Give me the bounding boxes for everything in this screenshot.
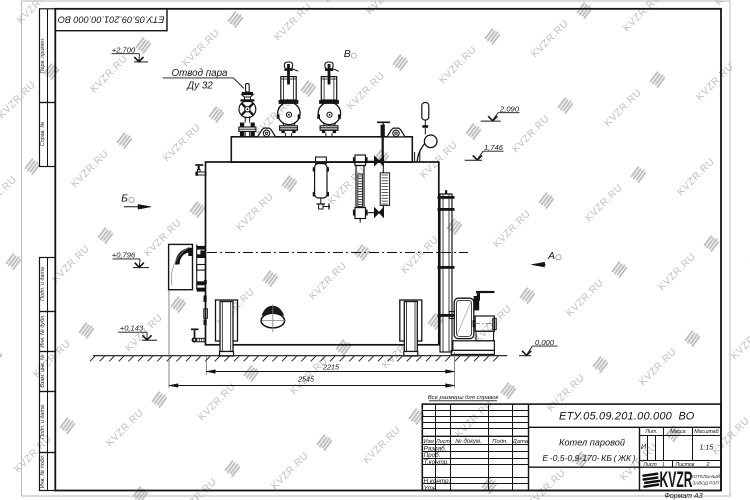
svg-text:В: В xyxy=(344,48,351,60)
svg-text:KVZR.RU: KVZR.RU xyxy=(177,476,219,500)
svg-text:KVZR.RU: KVZR.RU xyxy=(437,44,479,86)
svg-text:KVZR.RU: KVZR.RU xyxy=(510,113,552,155)
svg-text:KVZR.RU: KVZR.RU xyxy=(345,70,387,112)
svg-text:KVZR.RU: KVZR.RU xyxy=(399,234,441,276)
svg-text:KVZR.RU: KVZR.RU xyxy=(621,0,663,34)
svg-text:KVZR.RU: KVZR.RU xyxy=(272,1,314,43)
svg-text:Подп. и дата: Подп. и дата xyxy=(40,267,46,301)
svg-text:ЕТУ.05.09.201.00.000 ВО: ЕТУ.05.09.201.00.000 ВО xyxy=(559,410,695,422)
svg-text:Инв. № дубл.: Инв. № дубл. xyxy=(40,314,46,347)
svg-text:KVZR.RU: KVZR.RU xyxy=(656,251,698,293)
svg-text:KVZR.RU: KVZR.RU xyxy=(50,243,92,285)
svg-text:Отвод пара: Отвод пара xyxy=(171,68,228,79)
svg-text:Изм: Изм xyxy=(424,439,434,445)
svg-text:№ докум.: № докум. xyxy=(455,438,481,445)
svg-text:KVZR.RU: KVZR.RU xyxy=(123,312,165,354)
svg-text:KVZR.RU: KVZR.RU xyxy=(161,122,203,164)
svg-text:ЕТУ.05.09.201.00.000 ВО: ЕТУ.05.09.201.00.000 ВО xyxy=(58,14,165,24)
svg-text:Ду 32: Ду 32 xyxy=(186,81,213,92)
svg-text:+0,796: +0,796 xyxy=(112,251,136,260)
svg-text:Формат А3: Формат А3 xyxy=(664,493,702,500)
svg-text:KVZR.RU: KVZR.RU xyxy=(675,156,717,198)
svg-text:Инв. № подл.: Инв. № подл. xyxy=(40,455,46,488)
svg-text:KVZR.RU: KVZR.RU xyxy=(307,260,349,302)
svg-text:Подп.: Подп. xyxy=(492,439,507,445)
svg-text:KVZR.RU: KVZR.RU xyxy=(602,87,644,129)
svg-text:KVZR.RU: KVZR.RU xyxy=(637,346,679,388)
svg-text:Т.контр.: Т.контр. xyxy=(424,459,449,466)
svg-text:KVZR.RU: KVZR.RU xyxy=(0,79,38,121)
svg-text:KVZR.RU: KVZR.RU xyxy=(545,372,587,414)
svg-text:Лист: Лист xyxy=(435,439,450,445)
svg-text:Справ. №: Справ. № xyxy=(40,122,46,147)
svg-text:Масса: Масса xyxy=(670,429,685,435)
svg-text:Перв. примен.: Перв. примен. xyxy=(40,38,46,74)
svg-text:KVZR.RU: KVZR.RU xyxy=(88,53,130,95)
svg-text:+0,143: +0,143 xyxy=(120,323,144,332)
svg-text:Лит.: Лит. xyxy=(644,429,657,435)
svg-text:KVZR.RU: KVZR.RU xyxy=(583,182,625,224)
svg-text:KVZR: KVZR xyxy=(660,467,693,492)
svg-text:KVZR.RU: KVZR.RU xyxy=(269,450,311,492)
svg-text:Лист: Лист xyxy=(642,462,657,468)
svg-text:KVZR.RU: KVZR.RU xyxy=(31,338,73,380)
svg-text:Масштаб: Масштаб xyxy=(694,429,719,435)
svg-text:+2,700: +2,700 xyxy=(112,45,136,54)
svg-text:KVZR.RU: KVZR.RU xyxy=(196,381,238,423)
svg-text:KVZR.RU: KVZR.RU xyxy=(491,208,533,250)
svg-text:KVZR.RU: KVZR.RU xyxy=(729,320,750,362)
svg-text:2215: 2215 xyxy=(322,363,340,372)
svg-text:Утв.: Утв. xyxy=(423,485,438,492)
svg-text:KVZR.RU: KVZR.RU xyxy=(526,467,568,500)
svg-text:2: 2 xyxy=(706,462,710,468)
svg-text:Все размеры для справок: Все размеры для справок xyxy=(428,395,499,401)
svg-text:Взам. инв. №: Взам. инв. № xyxy=(40,354,46,388)
svg-text:KVZR.RU: KVZR.RU xyxy=(180,27,222,69)
svg-text:Е -0,5-0,9-170- КБ ( ЖК ): Е -0,5-0,9-170- КБ ( ЖК ) xyxy=(542,453,635,463)
svg-text:Проб.: Проб. xyxy=(424,451,441,459)
svg-text:А: А xyxy=(547,250,555,262)
svg-text:2545: 2545 xyxy=(297,375,315,384)
svg-text:KVZR.RU: KVZR.RU xyxy=(69,148,111,190)
svg-text:Б: Б xyxy=(121,192,128,204)
svg-text:Дата: Дата xyxy=(512,439,529,445)
svg-text:И: И xyxy=(641,442,647,451)
svg-text:Котел паровой: Котел паровой xyxy=(559,438,625,448)
svg-text:1:15: 1:15 xyxy=(699,445,713,452)
svg-text:ЗАВОД РЭП: ЗАВОД РЭП xyxy=(692,481,719,486)
svg-text:KVZR.RU: KVZR.RU xyxy=(0,174,19,216)
svg-text:KVZR.RU: KVZR.RU xyxy=(234,191,276,233)
svg-text:КОТЕЛЬНЫЙ: КОТЕЛЬНЫЙ xyxy=(691,472,721,479)
svg-text:KVZR.RU: KVZR.RU xyxy=(361,424,403,466)
svg-text:Подп. и дата: Подп. и дата xyxy=(40,405,46,439)
svg-text:KVZR.RU: KVZR.RU xyxy=(104,407,146,449)
svg-text:KVZR.RU: KVZR.RU xyxy=(142,217,184,259)
svg-text:KVZR.RU: KVZR.RU xyxy=(564,277,606,319)
svg-text:KVZR.RU: KVZR.RU xyxy=(529,18,571,60)
